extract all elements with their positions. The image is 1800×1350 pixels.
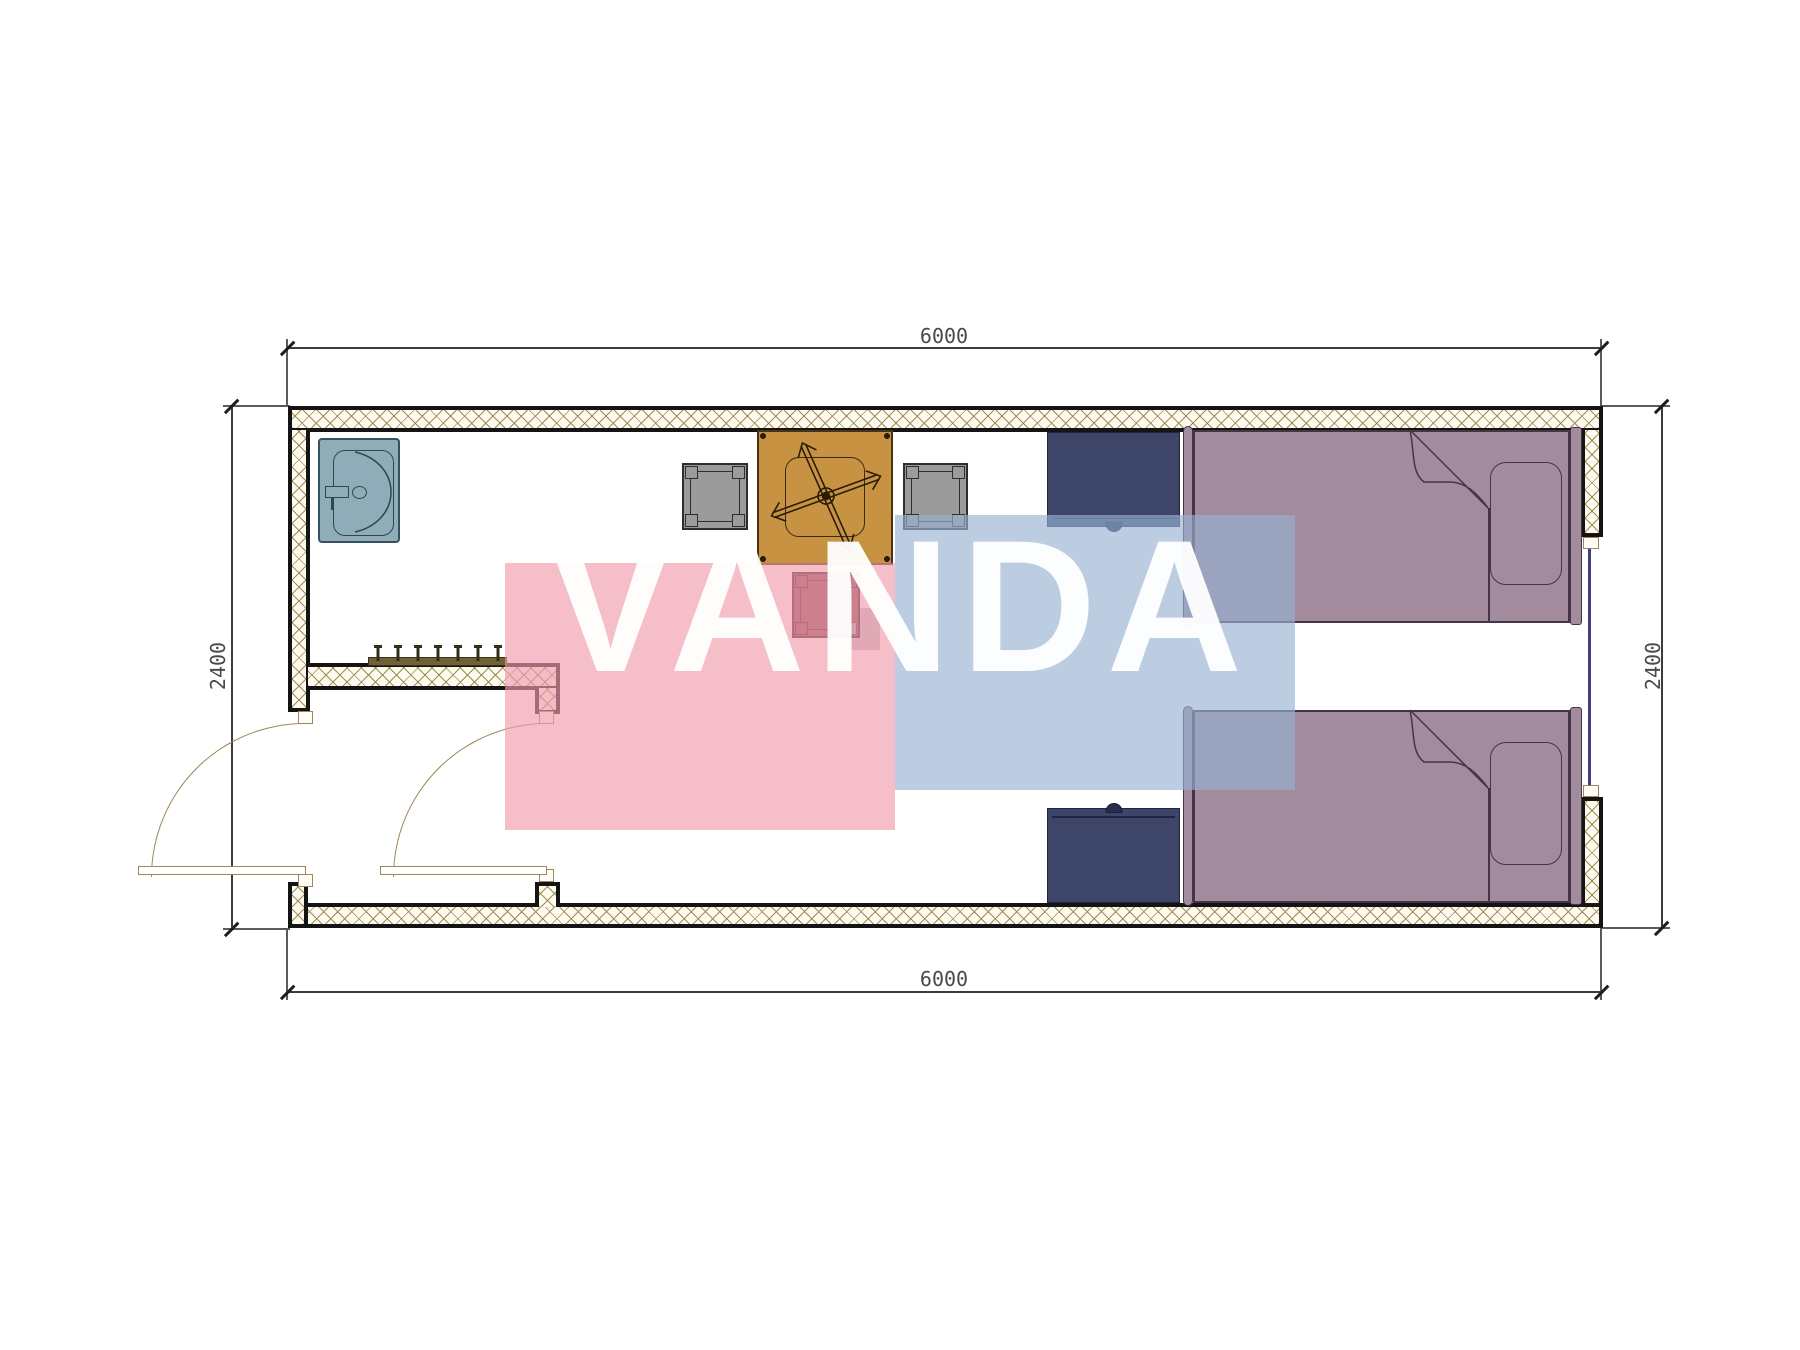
coat-hook [494, 645, 502, 661]
dim-label-right: 2400 [1641, 616, 1663, 716]
wall-right-upper [1581, 430, 1603, 537]
washbasin-tap-stem [331, 497, 333, 510]
coat-hook [394, 645, 402, 661]
dim-line-bottom [287, 991, 1601, 993]
washbasin-tap [325, 486, 349, 498]
bed-lower-headboard [1570, 707, 1582, 905]
coat-hook [454, 645, 462, 661]
window-glass-line [1588, 549, 1591, 785]
bed-lower-pillow [1490, 742, 1562, 865]
coat-hook [474, 645, 482, 661]
desk-edge-line [1052, 816, 1175, 818]
wall-left [288, 430, 310, 712]
wall-bottom [307, 903, 1603, 928]
dim-label-left: 2400 [206, 616, 228, 716]
coat-hook [374, 645, 382, 661]
coat-hook [434, 645, 442, 661]
desk-lower [1047, 808, 1180, 903]
window-jamb-bottom [1583, 785, 1599, 797]
chair-post [732, 466, 745, 479]
window-jamb-top [1583, 537, 1599, 549]
wall-door-stub [535, 882, 560, 907]
dim-label-top: 6000 [894, 324, 994, 348]
bed-lower-blanket-edge [1488, 788, 1490, 902]
dim-label-bottom: 6000 [894, 967, 994, 991]
wall-corner-stub-left [288, 882, 308, 928]
watermark-text: VANDA [520, 513, 1280, 699]
entry-door-swing-arc [151, 723, 305, 877]
entry-door-leaf [138, 866, 306, 875]
coat-hook [414, 645, 422, 661]
chair-post [952, 466, 965, 479]
desk-knob [1105, 803, 1122, 813]
chair-post [906, 466, 919, 479]
wall-right-lower [1581, 797, 1603, 903]
bed-upper-pillow [1490, 462, 1562, 585]
bed-lower-blanket-fold [1400, 706, 1500, 796]
bed-upper-blanket-edge [1488, 508, 1490, 622]
floor-plan-canvas: 6000 6000 2400 2400 [0, 0, 1800, 1350]
chair-post [685, 466, 698, 479]
bed-upper-headboard [1570, 427, 1582, 625]
washbasin-knob [352, 486, 367, 499]
bed-upper-blanket-fold [1400, 426, 1500, 516]
interior-door-leaf [380, 866, 547, 875]
